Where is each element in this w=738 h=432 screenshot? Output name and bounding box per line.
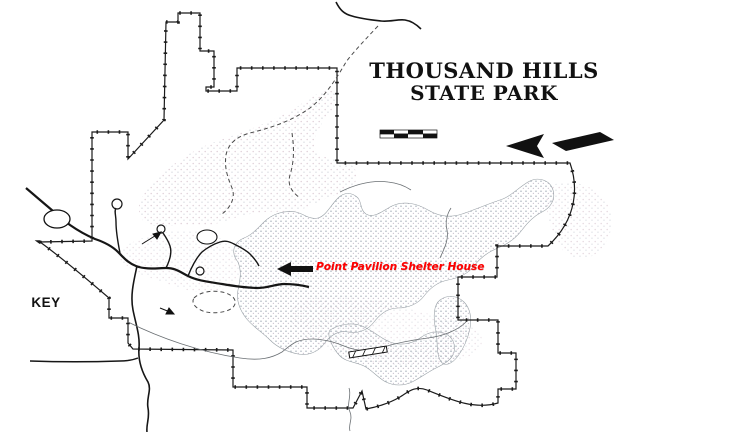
park-map-image: THOUSAND HILLS STATE PARK Point Pavilion… xyxy=(0,0,738,432)
map-key: KEY xyxy=(2,295,102,315)
point-pavilion-annotation: Point Pavilion Shelter House xyxy=(316,261,484,273)
park-title: THOUSAND HILLS STATE PARK xyxy=(368,60,600,104)
cabins-oval xyxy=(197,230,217,244)
route-157-shield xyxy=(44,210,70,228)
park-title-line2: STATE PARK xyxy=(368,82,600,104)
scale-bar xyxy=(380,130,437,138)
key-heading: KEY xyxy=(2,295,90,310)
park-title-line1: THOUSAND HILLS xyxy=(368,60,600,82)
